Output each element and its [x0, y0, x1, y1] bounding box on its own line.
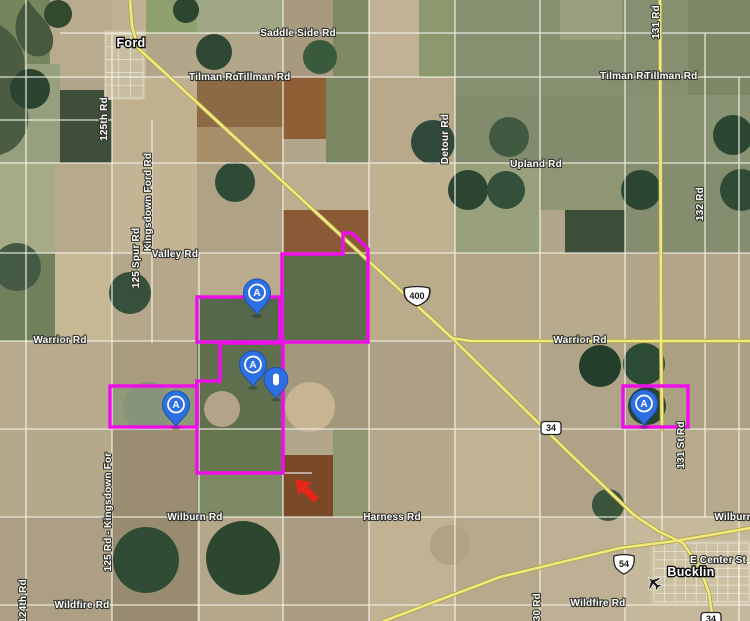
shield-number: 34: [546, 423, 556, 433]
field-patch: [55, 163, 112, 253]
field-patch: [0, 429, 112, 517]
field-patch: [369, 429, 455, 517]
road-label: 125 Spur Rd: [131, 228, 142, 289]
shield-number: 34: [706, 614, 716, 621]
road-label: 132 Rd: [695, 187, 706, 221]
field-patch: [326, 77, 369, 163]
field-patch: [0, 341, 112, 429]
pin-letter: A: [253, 288, 260, 299]
road-label: Saddle Side Rd: [260, 28, 336, 39]
pivot-circle: [196, 34, 232, 70]
road-label: Wilburn Rd: [714, 512, 750, 523]
road-label: Wilburn Rd: [167, 512, 222, 523]
road-label: Valley Rd: [152, 249, 198, 260]
road-label: 130 Rd: [532, 593, 543, 621]
pivot-circle: [204, 391, 240, 427]
road-label: 131 St Rd: [676, 421, 687, 468]
field-patch: [333, 0, 369, 77]
pivot-circle: [621, 170, 661, 210]
field-patch: [55, 253, 112, 341]
field-patch: [197, 429, 283, 473]
road-label: Tillman Rd: [238, 72, 291, 83]
shield-number: 54: [619, 559, 629, 569]
pivot-circle: [303, 40, 337, 74]
satellite-map-view[interactable]: 400543434Saddle Side RdTilman RdTillman …: [0, 0, 750, 621]
field-patch: [197, 473, 283, 517]
field-patch: [455, 429, 540, 517]
pin-letter: A: [640, 399, 647, 410]
road-label: Warrior Rd: [553, 335, 606, 346]
pin-letter: A: [249, 360, 256, 371]
road-label: 124th Rd: [18, 579, 29, 621]
field-patch: [419, 0, 455, 77]
route-shield-34: 34: [701, 613, 721, 621]
road-label: 125th Rd: [99, 97, 110, 141]
field-patch: [197, 77, 283, 127]
road-label: 131 Rd: [651, 5, 662, 39]
field-patch: [333, 429, 369, 517]
map-canvas[interactable]: 400543434Saddle Side RdTilman RdTillman …: [0, 0, 750, 621]
pivot-circle: [592, 489, 624, 521]
shield-number: 400: [409, 291, 424, 301]
route-shield-34: 34: [541, 422, 561, 435]
pin-letter: A: [172, 400, 179, 411]
field-patch: [283, 163, 369, 210]
field-patch: [283, 77, 326, 139]
field-patch: [112, 429, 197, 517]
field-patch: [112, 163, 197, 253]
field-patch: [112, 341, 197, 387]
pin-glyph-cylinder: [273, 373, 279, 385]
road-label: Upland Rd: [510, 159, 562, 170]
road-label: Detour Rd: [440, 114, 451, 164]
pivot-circle: [489, 117, 529, 157]
road-label: 125 Rd - Kingsdown For: [103, 453, 114, 572]
field-patch: [560, 0, 622, 40]
pivot-circle: [285, 382, 335, 432]
pivot-circle: [109, 272, 151, 314]
field-patch: [625, 253, 750, 341]
road-label: Tilman Rd: [600, 71, 650, 82]
road-label: Kingsdown Ford Rd: [143, 153, 154, 251]
pivot-circle: [487, 171, 525, 209]
road-label: Tillman Rd: [645, 71, 698, 82]
field-patch: [0, 163, 55, 253]
field-patch: [625, 429, 750, 517]
town-label: Bucklin: [667, 565, 714, 579]
field-patch: [369, 163, 455, 253]
field-patch: [369, 0, 419, 77]
field-patch: [369, 341, 455, 429]
field-patch: [455, 253, 540, 341]
field-patch: [540, 253, 625, 341]
town-label: Ford: [117, 36, 146, 50]
field-patch: [565, 210, 625, 253]
road-label: Wildfire Rd: [55, 600, 110, 611]
pivot-circle: [113, 527, 179, 593]
road-label: Tilman Rd: [189, 72, 239, 83]
pivot-circle: [579, 345, 621, 387]
field-patch: [283, 254, 369, 342]
road-label: Harness Rd: [363, 512, 421, 523]
road-label: Warrior Rd: [33, 335, 86, 346]
field-patch: [283, 455, 333, 517]
pivot-circle: [623, 343, 665, 385]
pivot-circle: [44, 0, 72, 28]
field-patch: [540, 163, 625, 210]
pivot-circle: [430, 525, 470, 565]
pivot-circle: [10, 69, 50, 109]
pivot-circle: [448, 170, 488, 210]
road-label: Wildfire Rd: [571, 598, 626, 609]
pivot-circle: [215, 162, 255, 202]
pivot-circle: [206, 521, 280, 595]
